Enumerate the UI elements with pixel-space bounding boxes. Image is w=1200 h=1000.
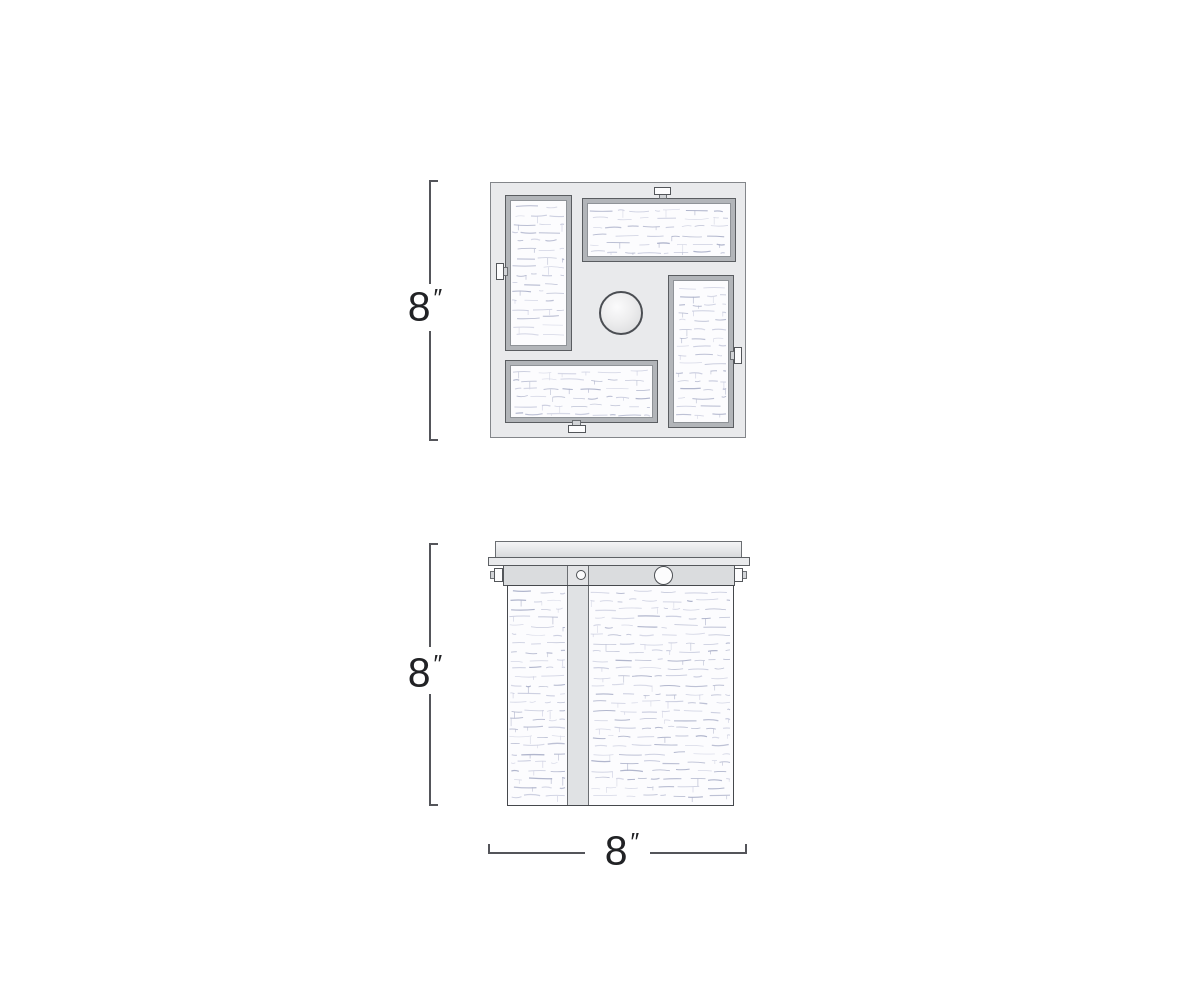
side-clip-right: [734, 568, 743, 582]
dimension-line: [429, 694, 431, 806]
textured-glass: [587, 203, 731, 257]
dimension-cap: [429, 804, 438, 806]
diagram-canvas: 8″ 8″ 8″: [0, 0, 1200, 1000]
retainer-clip-bottom: [568, 425, 586, 433]
center-finial-knob: [599, 291, 643, 335]
dimension-cap: [429, 543, 438, 545]
dimension-line: [488, 852, 585, 854]
dimension-unit: ″: [631, 830, 640, 857]
retainer-clip-right: [734, 347, 742, 364]
glass-panel-bottom: [505, 360, 658, 423]
textured-glass: [673, 280, 729, 423]
small-screw: [576, 570, 586, 580]
dimension-line: [429, 331, 431, 441]
dimension-line: [429, 180, 431, 284]
dimension-unit: ″: [434, 286, 443, 313]
textured-glass: [510, 365, 653, 418]
textured-glass: [510, 200, 567, 346]
retainer-clip-top: [654, 187, 671, 195]
glass-panel-top: [582, 198, 736, 262]
dimension-line: [429, 543, 431, 647]
dimension-label-side-view-height: 8″: [408, 653, 443, 694]
dimension-unit: ″: [434, 652, 443, 679]
glass-shade-profile: [507, 585, 734, 806]
textured-glass: [589, 586, 732, 805]
dimension-cap: [429, 439, 438, 441]
glass-panel-right: [668, 275, 734, 428]
dimension-line: [650, 852, 747, 854]
mounting-band: [503, 565, 735, 586]
corner-post: [567, 586, 589, 805]
side-clip-left: [494, 568, 503, 582]
dimension-cap: [745, 844, 747, 854]
glass-panel-left: [505, 195, 572, 351]
textured-glass: [508, 586, 567, 805]
dimension-value: 8: [408, 650, 431, 696]
dimension-label-side-view-width: 8″: [605, 831, 640, 872]
ceiling-canopy: [495, 541, 742, 558]
dimension-cap: [488, 844, 490, 854]
thumbscrew: [654, 566, 673, 585]
top-view-plate: [490, 182, 746, 438]
dimension-value: 8: [605, 828, 628, 874]
dimension-cap: [429, 180, 438, 182]
dimension-label-top-view-height: 8″: [408, 287, 443, 328]
retainer-clip-left: [496, 263, 504, 280]
dimension-value: 8: [408, 284, 431, 330]
